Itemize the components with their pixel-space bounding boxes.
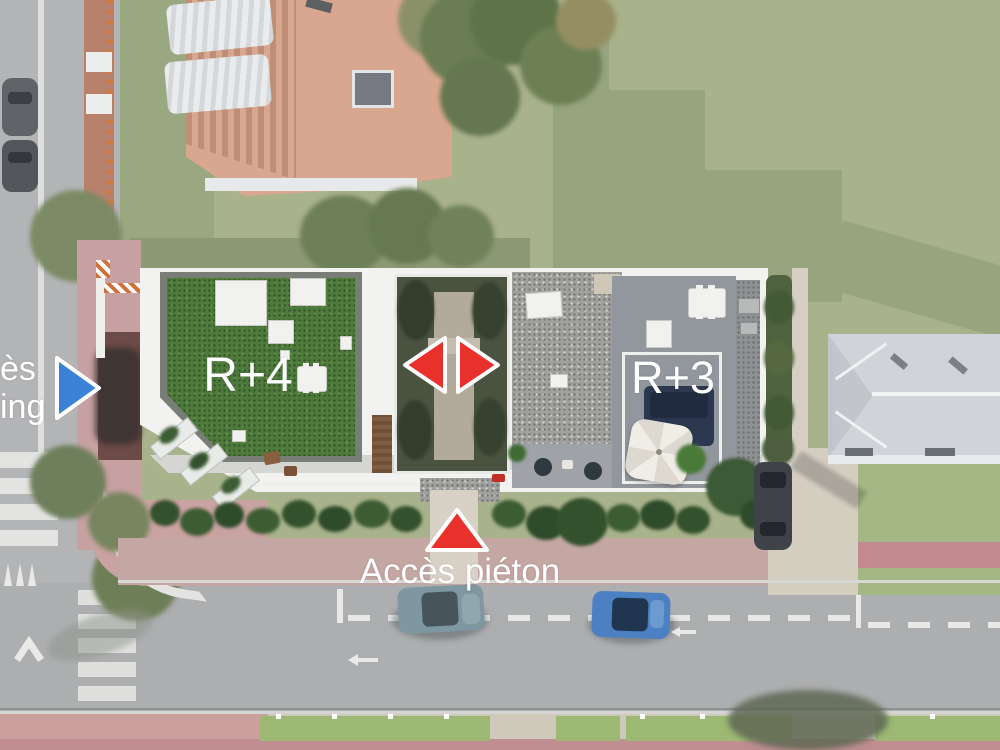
- chevron-marking: [17, 642, 41, 660]
- annotation-layer: [0, 0, 1000, 750]
- label-r3: R+3: [623, 352, 723, 404]
- label-acces-parking-partial-line2: ing: [0, 388, 45, 427]
- give-way-triangle: [28, 563, 36, 586]
- label-acces-pieton: Accès piéton: [330, 552, 590, 592]
- give-way-triangle: [4, 563, 12, 586]
- parking-access-arrow-icon: [57, 358, 99, 418]
- site-plan-rendering: R+4 R+3 Accès piéton ès ing: [0, 0, 1000, 750]
- courtyard-arrow-left-icon: [405, 338, 445, 392]
- give-way-triangle: [16, 563, 24, 586]
- label-acces-parking-partial-line1: ès: [0, 350, 36, 389]
- road-arrow-head: [671, 627, 680, 637]
- label-r4: R+4: [193, 348, 303, 403]
- road-arrow-head: [348, 654, 358, 666]
- courtyard-arrow-right-icon: [458, 338, 498, 392]
- pedestrian-access-arrow-icon: [427, 510, 487, 550]
